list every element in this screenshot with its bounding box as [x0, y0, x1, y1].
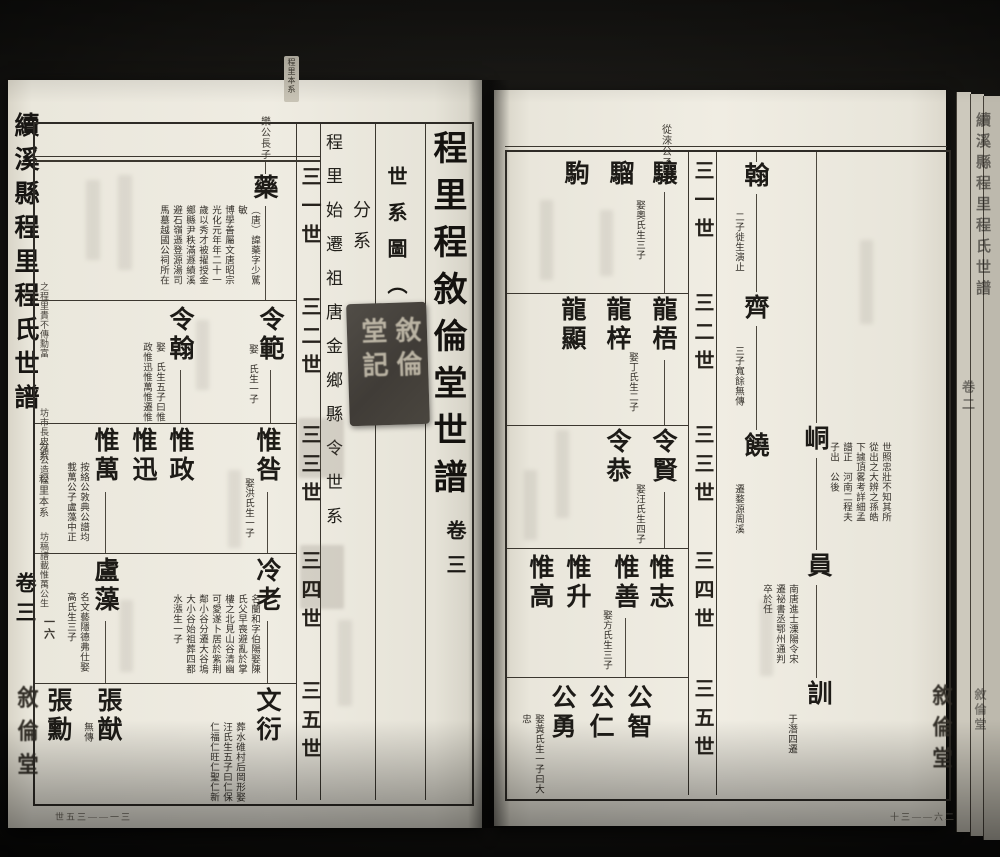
- descent-line: [265, 162, 266, 174]
- tree-node-name: 盧藻: [92, 557, 117, 621]
- descent-line: [816, 458, 817, 550]
- descent-line: [267, 621, 268, 683]
- generation-label: 三五世: [692, 678, 712, 768]
- descent-line: [625, 618, 626, 677]
- tree-node-name: 龍梓: [604, 296, 629, 360]
- tree-node-note: 娶汪氏生四子: [631, 484, 645, 558]
- generation-label: 三一世: [692, 160, 712, 250]
- column-rule: [716, 152, 717, 795]
- tree-node-name: 翰: [742, 162, 767, 194]
- tree-node-name: 張勳: [45, 687, 70, 751]
- tree-node-note: 世照忠壯不知其所 從出之大辨之孫皓 下據頂畧考詳細孟 譜正 河南二程夫 子出 公…: [825, 442, 891, 546]
- tree-node-name: 龍顯: [559, 296, 584, 360]
- tree-node-note: 名文藝隱德弗仕娶 高氏生三子: [62, 592, 89, 676]
- header-label-left: 樂公長子: [258, 116, 269, 162]
- tree-node-name: 峒: [802, 425, 827, 457]
- generation-label: 三二世: [299, 296, 319, 386]
- tree-node-note: 按絡公敦典公譜均 載萬公子盧藻中正: [62, 462, 89, 546]
- tree-node-name: 公仁: [587, 684, 612, 748]
- generation-label: 三一世: [299, 166, 319, 256]
- generation-label: 三五世: [299, 680, 319, 770]
- tree-node-note: 娶黃氏生一子曰大 忠: [514, 714, 544, 798]
- tree-node-note: 三子寬餘無傳: [730, 346, 744, 420]
- tree-node-name: 惟高: [527, 554, 552, 618]
- margin-note: 之程里貴不傳勳富: [38, 282, 49, 374]
- book-scan-photo: 續溪縣程里程氏世譜 卷二 敘倫堂 程里本系 續溪縣程里程氏世譜 卷三 分系 程里…: [0, 0, 1000, 857]
- tree-node-note: 二子徙生演止: [730, 212, 744, 286]
- page-title-volume: 卷三: [440, 520, 469, 598]
- bleed-through-mark: [196, 320, 209, 390]
- generation-label: 三二世: [692, 292, 712, 382]
- column-rule: [296, 124, 297, 800]
- descent-line: [105, 492, 106, 553]
- generation-label: 三四世: [299, 550, 319, 640]
- margin-note: 坊稿譜載惟萬公生: [38, 532, 49, 624]
- tree-node-note: 遷婺源周溪: [730, 484, 744, 546]
- hall-seal-stamp: 敘倫堂記: [346, 302, 430, 426]
- page-edge-spine-title: 續溪縣程里程氏世譜: [972, 112, 993, 572]
- tree-node-name: 龍梧: [650, 296, 675, 360]
- bleed-through-mark: [600, 210, 613, 276]
- margin-note: 坊市長史通公造公: [38, 408, 49, 500]
- tree-node-name: 文衍: [254, 687, 279, 751]
- page-edge-hall-label: 敘倫堂: [972, 688, 989, 778]
- bleed-through-mark: [228, 470, 241, 548]
- bleed-through-mark: [86, 180, 100, 260]
- band-rule: [35, 553, 296, 554]
- page-edge-volume-label: 卷二: [958, 380, 977, 440]
- hall-mark-right: 敘倫堂: [926, 684, 955, 792]
- tree-node-name: 駒: [562, 160, 587, 192]
- band-rule: [507, 293, 688, 294]
- tree-node-note: 于潛四遷: [783, 714, 797, 762]
- band-rule: [507, 425, 688, 426]
- tree-node-name: 令恭: [604, 428, 629, 492]
- fold-range-left: 世五三——一三: [55, 810, 132, 823]
- tree-node-note: 名蘭和字伯陽娶陳 氏父早喪避亂於掌 樓之北見山谷清幽 可愛遂卜居於紫荆 鄰小谷分…: [166, 594, 260, 678]
- tree-node-note: 娶 氏生一子: [244, 344, 258, 428]
- page-title: 程里程敘倫堂世譜: [429, 130, 463, 518]
- tree-node-note: 娶方氏生三子: [598, 610, 612, 684]
- generation-label: 三三世: [692, 424, 712, 514]
- bleed-through-mark: [760, 600, 773, 676]
- descent-line: [664, 360, 665, 425]
- tree-node-name: 公智: [625, 684, 650, 748]
- descent-line: [267, 492, 268, 553]
- hall-seal-text: 敘倫堂記: [355, 316, 426, 414]
- tree-node-note: 葬水碓村后岡形娶 汪氏生五子曰仁保 仁福仁旺仁聖仁新: [205, 722, 245, 806]
- band-rule: [35, 156, 320, 157]
- column-rule: [688, 152, 689, 795]
- tree-node-name: 騮: [607, 160, 632, 192]
- tree-node-name: 驤: [650, 160, 675, 192]
- page-edge-strip: [956, 92, 971, 832]
- tree-node-note: 娶 氏生五子曰惟 政惟迅惟萬惟遷惟: [138, 342, 165, 426]
- tree-node-name: 惟志: [647, 554, 672, 618]
- tree-node-name: 惟善: [612, 554, 637, 618]
- bleed-through-mark: [860, 240, 873, 324]
- bleed-through-mark: [338, 620, 352, 706]
- tree-node-name: 令翰: [167, 306, 192, 370]
- column-rule: [375, 124, 376, 800]
- bleed-through-mark: [120, 600, 133, 672]
- band-rule: [35, 683, 296, 684]
- descent-line: [270, 370, 271, 423]
- band-rule: [507, 548, 688, 549]
- tree-node-note: 無傳: [80, 722, 93, 750]
- gutter-shadow: [468, 80, 510, 828]
- tree-node-name: 惟萬: [92, 427, 117, 491]
- descent-line: [664, 192, 665, 293]
- tree-node-name: 惟升: [564, 554, 589, 618]
- tree-node-name: 訓: [805, 680, 830, 712]
- generation-label: 三三世: [299, 424, 319, 514]
- descent-line: [756, 152, 757, 162]
- lineage-heading: 程里始遷祖唐金鄉縣令世系: [320, 133, 345, 565]
- top-edge-label: 程里本系: [286, 58, 297, 102]
- descent-line: [105, 621, 106, 683]
- tree-node-note: 娶洪氏生一子: [240, 478, 254, 562]
- tree-node-note: （唐）諱藥字少騭敏 博學善屬文唐昭宗 光化元年年二十一 歲以秀才被擢授金 鄉縣尹…: [166, 205, 260, 291]
- descent-line: [180, 370, 181, 423]
- tree-node-name: 令賢: [650, 428, 675, 492]
- descent-line: [756, 326, 757, 430]
- band-rule: [35, 300, 296, 301]
- descent-line: [265, 206, 266, 300]
- bleed-through-mark: [118, 175, 132, 270]
- tree-node-name: 惟咎: [254, 427, 279, 491]
- tree-node-name: 惟政: [167, 427, 192, 491]
- tree-node-name: 饒: [742, 432, 767, 464]
- column-rule: [425, 124, 426, 800]
- fold-range-right: 十三——六二: [890, 810, 956, 823]
- generation-label: 三四世: [692, 550, 712, 640]
- tree-node-name: 齊: [742, 294, 767, 326]
- descent-line: [816, 152, 817, 423]
- descent-line: [816, 585, 817, 678]
- band-rule: [505, 146, 947, 147]
- bleed-through-mark: [524, 470, 537, 540]
- descent-line: [664, 492, 665, 548]
- tree-node-note: 娶丁氏生二子: [624, 352, 638, 426]
- branch-label: 分系: [348, 200, 374, 262]
- descent-line: [756, 194, 757, 292]
- band-rule: [35, 160, 320, 162]
- tree-node-name: 藥: [251, 174, 276, 206]
- tree-node-name: 張猷: [95, 687, 120, 751]
- tree-node-name: 公勇: [549, 684, 574, 748]
- tree-node-name: 惟迅: [130, 427, 155, 491]
- tree-node-name: 令範: [257, 306, 282, 370]
- tree-node-name: 員: [805, 552, 830, 584]
- tree-node-note: 娶奧氏生三子: [631, 200, 645, 274]
- bleed-through-mark: [556, 430, 569, 518]
- bleed-through-mark: [540, 200, 553, 280]
